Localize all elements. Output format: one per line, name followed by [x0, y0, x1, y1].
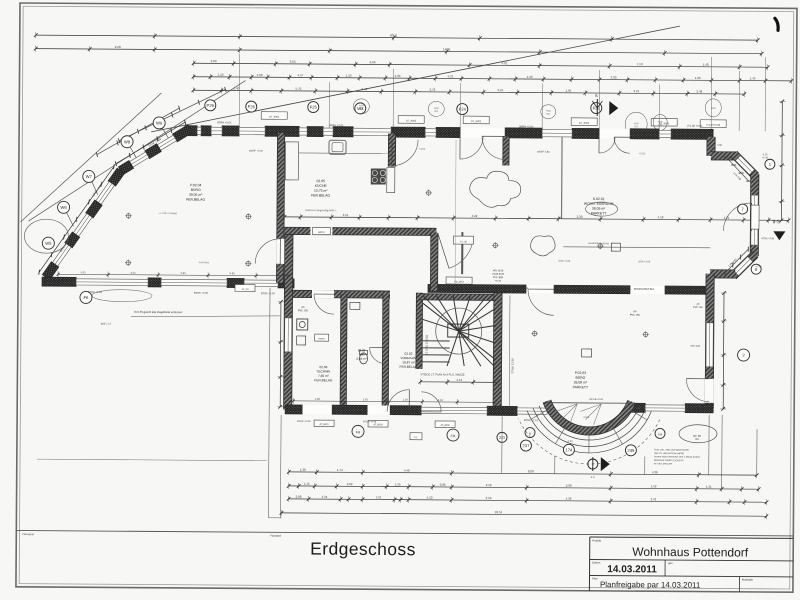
svg-text:-0.15: -0.15 — [575, 428, 581, 431]
svg-text:700-: 700- — [695, 438, 700, 441]
svg-text:1.50: 1.50 — [257, 73, 263, 77]
svg-text:+0.9: +0.9 — [434, 108, 439, 110]
svg-text:1.10: 1.10 — [346, 74, 352, 78]
svg-text:PARKETT: PARKETT — [573, 385, 588, 389]
svg-text:OKRF 2.86: OKRF 2.86 — [537, 151, 550, 154]
svg-text:PVC 150: PVC 150 — [693, 306, 703, 309]
svg-text:FM: FM — [356, 430, 361, 434]
svg-text:+1.45: +1.45 — [762, 156, 769, 159]
svg-text:Planstand: Planstand — [22, 532, 34, 536]
svg-text:4.46: 4.46 — [404, 468, 410, 472]
svg-text:+0.86: +0.86 — [755, 265, 762, 268]
svg-text:237: 237 — [522, 443, 530, 448]
svg-text:PVC 150: PVC 150 — [298, 309, 309, 312]
svg-text:FER.BELAG: FER.BELAG — [311, 193, 330, 197]
svg-text:2,86 m²: 2,86 m² — [356, 357, 366, 361]
svg-text:F26: F26 — [248, 104, 256, 109]
svg-text:2.56: 2.56 — [486, 483, 492, 487]
svg-text:1.0: 1.0 — [591, 475, 595, 479]
svg-text:245: 245 — [627, 448, 635, 453]
svg-text:5.95: 5.95 — [181, 271, 187, 275]
svg-text:KERRAHE GESETZLIGKEITA: KERRAHE GESETZLIGKEITA — [654, 459, 684, 462]
svg-text:1.43: 1.43 — [750, 76, 756, 80]
svg-text:+0.9: +0.9 — [359, 105, 364, 107]
svg-text:FER.BELAG: FER.BELAG — [186, 198, 205, 202]
svg-text:+0.00: +0.00 — [583, 416, 590, 419]
svg-text:W8: W8 — [124, 139, 131, 144]
svg-text:+/- 0.00 = Parkett: +/- 0.00 = Parkett — [159, 212, 178, 215]
svg-text:Vom Flugsand alte Ziegelbette: Vom Flugsand alte Ziegelbette entfernen — [134, 310, 183, 314]
svg-text:BTOK +0.93: BTOK +0.93 — [261, 292, 275, 295]
svg-text:-0.30: -0.30 — [567, 440, 573, 443]
svg-text:2*1.45 +2.01: 2*1.45 +2.01 — [687, 124, 703, 128]
svg-text:1.74: 1.74 — [337, 468, 343, 472]
svg-text:BTOK +0.93: BTOK +0.93 — [194, 292, 208, 295]
svg-text:AT_8001: AT_8001 — [406, 119, 417, 123]
svg-text:5.01: 5.01 — [81, 270, 87, 274]
svg-text:F25: F25 — [310, 105, 318, 110]
svg-text:AT_8001: AT_8001 — [269, 115, 280, 119]
svg-text:Küchenzl. längsseitig möbl. 1: Küchenzl. längsseitig möbl. 1 — [306, 209, 338, 212]
svg-text:BÜRO: BÜRO — [191, 188, 201, 192]
svg-text:W9: W9 — [156, 121, 163, 126]
svg-text:STIEGE LT. PLAN Nr.4 PLG. MASZ: STIEGE LT. PLAN Nr.4 PLG. MASZE — [420, 372, 465, 376]
svg-text:AT_03: AT_03 — [242, 288, 250, 291]
svg-text:Planfreigabe par 14.03.2011: Planfreigabe par 14.03.2011 — [600, 580, 701, 590]
svg-text:7.19: 7.19 — [637, 62, 643, 66]
svg-text:38,09 m²: 38,09 m² — [592, 207, 606, 211]
svg-text:5.21: 5.21 — [448, 74, 454, 78]
svg-text:BODENHEIZUNG: BODENHEIZUNG — [634, 288, 654, 291]
svg-text:4.36: 4.36 — [652, 470, 658, 474]
svg-text:+0.9: +0.9 — [658, 121, 663, 123]
svg-text:18.51: 18.51 — [495, 510, 503, 514]
svg-text:+0.9: +0.9 — [634, 123, 639, 125]
svg-text:BÜRO: BÜRO — [575, 376, 585, 380]
svg-text:2.0: 2.0 — [499, 435, 506, 440]
svg-text:STW +2.05: STW +2.05 — [638, 260, 651, 263]
svg-text:20.41: 20.41 — [390, 33, 398, 37]
svg-text:+2.01: +2.01 — [419, 148, 426, 151]
svg-text:17 STG 17,6/28: 17 STG 17,6/28 — [425, 335, 429, 355]
svg-text:BTOK +0.93: BTOK +0.93 — [363, 420, 377, 423]
svg-text:4.36: 4.36 — [566, 497, 572, 501]
svg-text:2*1.45+0.94: 2*1.45+0.94 — [706, 123, 721, 127]
svg-text:2.46: 2.46 — [696, 90, 702, 94]
svg-text:1.93: 1.93 — [395, 74, 401, 78]
svg-text:1.31: 1.31 — [322, 495, 328, 499]
svg-text:+0.44: +0.44 — [495, 281, 502, 283]
svg-text:174: 174 — [565, 447, 573, 452]
svg-text:1.91: 1.91 — [363, 397, 369, 401]
svg-text:1.40: 1.40 — [703, 63, 709, 67]
svg-text:Erdgeschoss: Erdgeschoss — [310, 539, 416, 560]
svg-text:1.95: 1.95 — [565, 89, 571, 93]
svg-text:PVC 150: PVC 150 — [630, 314, 641, 317]
svg-text:DOPPE ABST WAHURG DES 2 SEDELI: DOPPE ABST WAHURG DES 2 SEDELICHEN — [654, 455, 700, 458]
svg-text:UND ST. UNQUATION mdPRE: UND ST. UNQUATION mdPRE — [654, 452, 685, 455]
svg-text:8.00: 8.00 — [528, 469, 534, 473]
svg-text:FER.BELAG: FER.BELAG — [314, 378, 332, 382]
svg-text:3.51: 3.51 — [343, 213, 349, 217]
svg-text:13,75 m²: 13,75 m² — [314, 189, 328, 193]
svg-text:S: S — [595, 93, 598, 98]
svg-text:P.02.03: P.02.03 — [575, 371, 586, 375]
svg-text:BGF=7,5: BGF=7,5 — [101, 322, 112, 326]
svg-text:B: B — [529, 432, 531, 436]
svg-text:F6: F6 — [83, 295, 89, 300]
svg-text:3.21: 3.21 — [497, 88, 503, 92]
svg-text:4.14: 4.14 — [438, 398, 444, 402]
svg-text:WK01: WK01 — [318, 231, 325, 234]
svg-text:+0.9: +0.9 — [711, 108, 716, 110]
svg-text:AT_8001: AT_8001 — [579, 121, 590, 125]
svg-text:PVC 4654: PVC 4654 — [493, 277, 504, 279]
svg-text:S.02.01: S.02.01 — [593, 197, 605, 201]
svg-text:4.27: 4.27 — [298, 73, 304, 77]
svg-text:5.70: 5.70 — [295, 87, 301, 91]
svg-text:50RH +2.01: 50RH +2.01 — [217, 120, 232, 124]
svg-text:OK FB +0.00: OK FB +0.00 — [589, 398, 604, 401]
svg-text:P.02.04: P.02.04 — [190, 183, 201, 187]
svg-text:1.21: 1.21 — [376, 495, 382, 499]
svg-text:2.21: 2.21 — [633, 89, 639, 93]
svg-text:AT_8001: AT_8001 — [319, 423, 329, 426]
svg-text:FM: FM — [658, 432, 663, 436]
svg-text:AT_8003: AT_8003 — [373, 423, 383, 426]
svg-text:1.10: 1.10 — [218, 73, 224, 77]
svg-text:FM: FM — [451, 434, 456, 438]
svg-text:AT_05: AT_05 — [460, 240, 468, 243]
svg-text:Maßstab: Maßstab — [742, 578, 753, 582]
svg-text:3.63: 3.63 — [290, 60, 296, 64]
svg-text:gez.: gez. — [668, 561, 674, 565]
svg-text:W5: W5 — [45, 241, 52, 246]
svg-text:-0.45 Kies: -0.45 Kies — [198, 261, 210, 264]
svg-text:2.56: 2.56 — [486, 496, 492, 500]
svg-text:14.81: 14.81 — [443, 47, 451, 51]
svg-text:BTOK +2.01: BTOK +2.01 — [524, 419, 538, 422]
svg-text:1.21: 1.21 — [724, 216, 730, 220]
svg-text:1.35: 1.35 — [395, 482, 401, 486]
svg-text:Plan: Plan — [592, 577, 598, 581]
svg-text:Datum: Datum — [592, 561, 601, 565]
svg-text:STUK 12.50: STUK 12.50 — [510, 358, 514, 374]
svg-text:W6: W6 — [60, 205, 67, 210]
svg-text:WD 10/18: WD 10/18 — [493, 270, 504, 272]
svg-text:BTOK +0.93: BTOK +0.93 — [88, 291, 102, 294]
svg-text:+0.9: +0.9 — [546, 111, 551, 113]
svg-text:9.09: 9.09 — [211, 59, 217, 63]
svg-text:1.10: 1.10 — [527, 75, 533, 79]
svg-text:1.30: 1.30 — [403, 397, 409, 401]
svg-text:Wohnhaus Pottendorf: Wohnhaus Pottendorf — [632, 545, 749, 560]
svg-text:LINOLEUM: LINOLEUM — [492, 274, 504, 276]
svg-text:P26: P26 — [207, 103, 215, 108]
svg-text:F24: F24 — [459, 107, 467, 112]
svg-text:4.10: 4.10 — [427, 496, 433, 500]
svg-text:Plandatei: Plandatei — [270, 534, 281, 538]
svg-text:02.05: 02.05 — [317, 179, 326, 183]
svg-text:2.02: 2.02 — [347, 482, 353, 486]
svg-text:BD_4654: BD_4654 — [454, 281, 464, 283]
svg-text:BODENHEIZUNG: BODENHEIZUNG — [508, 287, 528, 290]
svg-text:TEXT GEL. AND DDR MATRIXUNG: TEXT GEL. AND DDR MATRIXUNG — [654, 448, 689, 451]
svg-text:14.03.2011: 14.03.2011 — [607, 564, 657, 575]
svg-text:39,08 m²: 39,08 m² — [574, 380, 588, 384]
svg-text:1.41: 1.41 — [706, 485, 712, 489]
svg-text:0.95: 0.95 — [230, 271, 236, 275]
svg-text:6.01: 6.01 — [131, 271, 137, 275]
svg-text:+2.01: +2.01 — [639, 152, 646, 155]
svg-text:2.76: 2.76 — [429, 88, 435, 92]
svg-text:4.14: 4.14 — [456, 378, 462, 382]
svg-text:BTOK +0.93: BTOK +0.93 — [297, 420, 311, 423]
svg-text:2.86: 2.86 — [717, 144, 722, 147]
svg-text:2.30: 2.30 — [577, 215, 583, 219]
svg-text:4.22: 4.22 — [472, 214, 478, 218]
svg-text:1.52: 1.52 — [651, 484, 657, 488]
svg-text:6.66: 6.66 — [370, 60, 376, 64]
svg-text:FER.BELAG: FER.BELAG — [400, 365, 418, 369]
svg-text:FTH 0.87: FTH 0.87 — [691, 346, 701, 348]
svg-text:3.30: 3.30 — [611, 75, 617, 79]
svg-text:4.18: 4.18 — [658, 215, 664, 219]
svg-text:1.40: 1.40 — [233, 86, 239, 90]
svg-text:2.08: 2.08 — [315, 397, 321, 401]
svg-text:39,05 m²: 39,05 m² — [189, 193, 203, 197]
svg-text:1.13: 1.13 — [304, 482, 310, 486]
svg-text:1.29: 1.29 — [695, 76, 701, 80]
svg-text:KÜCHE: KÜCHE — [315, 184, 328, 188]
svg-text:OKRF +0.00: OKRF +0.00 — [249, 150, 264, 153]
svg-text:HW01: HW01 — [318, 338, 325, 340]
svg-text:2.08: 2.08 — [296, 495, 302, 499]
svg-text:ATT AHL MAGLER: ATT AHL MAGLER — [654, 462, 673, 465]
svg-text:W7: W7 — [86, 174, 93, 179]
svg-text:2.28: 2.28 — [115, 45, 121, 49]
svg-text:1.38: 1.38 — [300, 468, 306, 472]
svg-text:STW +2.05: STW +2.05 — [558, 260, 571, 263]
svg-text:Projekt: Projekt — [592, 539, 601, 543]
svg-text:2.90: 2.90 — [566, 484, 572, 488]
svg-text:AT_8001: AT_8001 — [471, 119, 482, 123]
svg-text:0.96: 0.96 — [440, 483, 446, 487]
svg-text:AT_8000: AT_8000 — [440, 424, 450, 427]
svg-text:STOK +2.86: STOK +2.86 — [761, 238, 774, 240]
svg-text:2.41: 2.41 — [651, 497, 657, 501]
